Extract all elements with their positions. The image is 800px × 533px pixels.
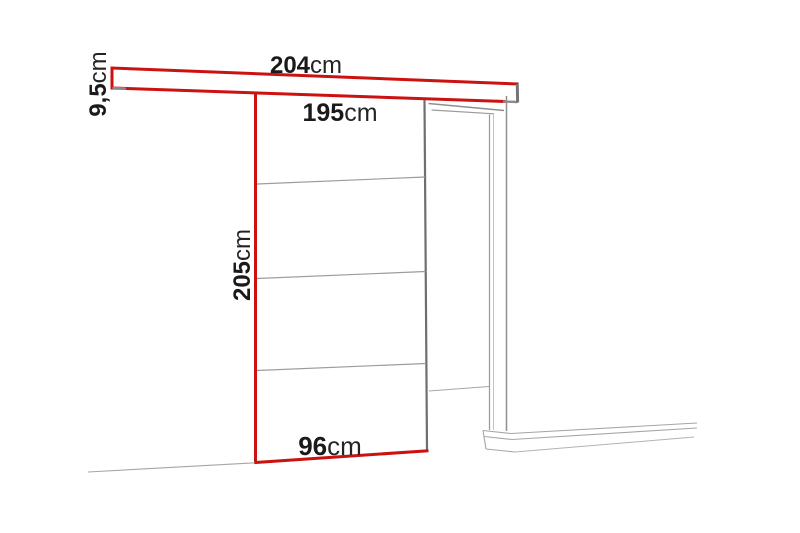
floor-line [88, 463, 255, 472]
rail-length-value: 204 [270, 52, 311, 79]
frame-lintel-outer [429, 104, 505, 111]
rail-height-value: 9,5 [85, 83, 112, 116]
door-width-label: 96cm [298, 431, 362, 461]
rail-height-unit: cm [85, 51, 112, 83]
rail-length-label: 204cm [270, 52, 342, 79]
door-groove-3 [257, 364, 426, 371]
rail-length-unit: cm [310, 52, 342, 79]
door-height-unit: cm [229, 229, 256, 261]
plinth-left-edge [483, 431, 486, 450]
door-right-edge [425, 100, 428, 451]
track-width-label: 195cm [302, 99, 377, 127]
track-width-value: 195 [302, 99, 344, 127]
baseboard-top [511, 423, 697, 434]
door-width-value: 96 [298, 431, 327, 461]
rail-bottom-end-gray [503, 102, 518, 103]
dimension-diagram: 204cm 195cm 9,5cm 205cm 96cm [0, 0, 800, 533]
rail-left-cap-mark [113, 88, 127, 89]
track-width-unit: cm [344, 99, 377, 127]
door-panel [256, 94, 428, 463]
door-groove-2 [257, 272, 426, 279]
dimension-labels: 204cm 195cm 9,5cm 205cm 96cm [85, 51, 378, 461]
door-frame [429, 96, 698, 452]
door-height-label: 205cm [229, 229, 256, 301]
baseboard-bottom [515, 437, 694, 452]
opening-back-line [429, 387, 489, 392]
plinth-step [484, 437, 512, 440]
door-groove-1 [257, 177, 425, 184]
rail-height-label: 9,5cm [85, 51, 112, 116]
diagram-canvas: 204cm 195cm 9,5cm 205cm 96cm [0, 0, 800, 533]
plinth-bottom [486, 449, 515, 452]
door-width-unit: cm [327, 431, 362, 461]
frame-lintel-inner [432, 110, 495, 114]
baseboard-mid [512, 428, 697, 440]
door-height-value: 205 [229, 261, 256, 301]
